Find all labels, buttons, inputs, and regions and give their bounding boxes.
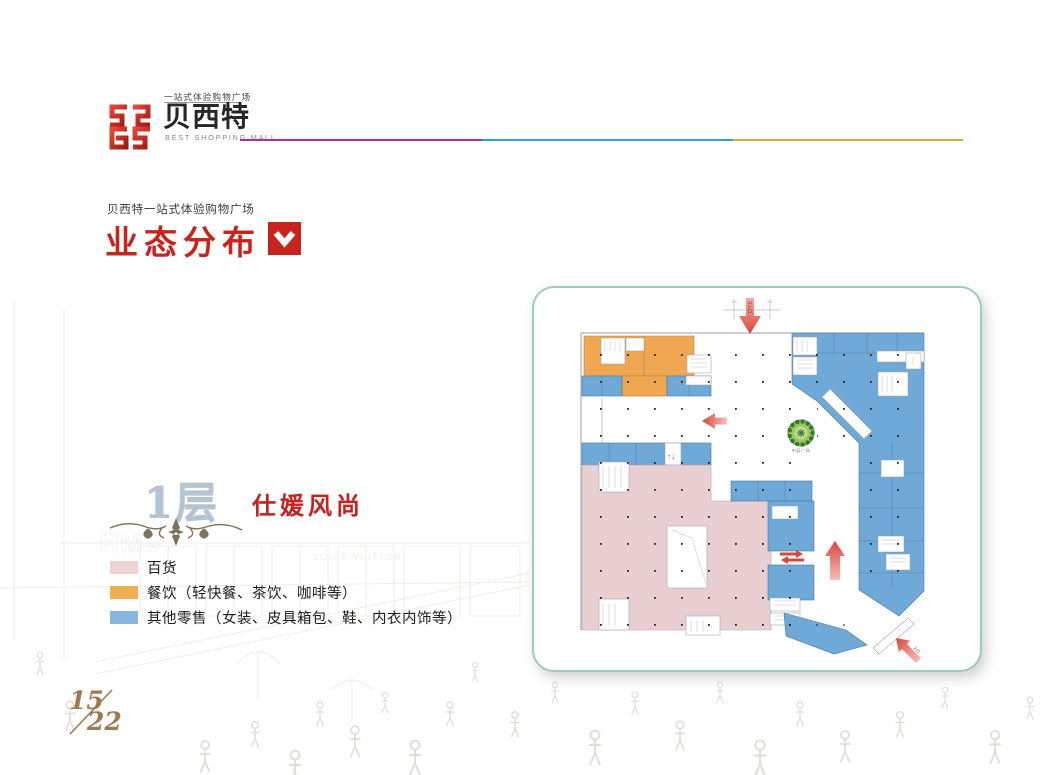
floorplan-card: 主入口 xyxy=(532,286,982,672)
header-rule-orange xyxy=(733,139,963,141)
tree-icon xyxy=(788,419,815,446)
legend-label: 餐饮（轻快餐、茶饮、咖啡等） xyxy=(147,582,357,603)
legend-swatch-department xyxy=(110,561,138,574)
top-entrance: 主入口 xyxy=(724,298,780,334)
legend-item-dining: 餐饮（轻快餐、茶饮、咖啡等） xyxy=(110,583,462,601)
floor-theme-title: 仕媛风尚 xyxy=(252,486,364,521)
legend: 百货 餐饮（轻快餐、茶饮、咖啡等） 其他零售（女装、皮具箱包、鞋、内衣内饰等） xyxy=(110,558,462,633)
header-rule-blue xyxy=(482,139,733,141)
top-entrance-label: 主入口 xyxy=(748,301,754,313)
plaza-label: 中庭广场 xyxy=(792,447,811,454)
brand-seal-icon xyxy=(106,103,154,151)
legend-swatch-dining xyxy=(110,586,138,599)
page-total: 22 xyxy=(87,707,122,736)
legend-swatch-other-retail xyxy=(110,611,138,624)
logo-name: 贝西特 xyxy=(163,101,250,133)
ornament-flourish-icon xyxy=(108,516,244,548)
legend-label: 百货 xyxy=(147,557,177,578)
legend-item-other-retail: 其他零售（女装、皮具箱包、鞋、内衣内饰等） xyxy=(110,608,462,626)
slide: HMV LOUIS VUITTON xyxy=(0,0,1059,775)
flow-arrow-up-icon xyxy=(825,541,845,580)
floorplan-drawing: 主入口 xyxy=(534,288,980,670)
page-number: 15 22 xyxy=(64,686,126,742)
chevron-down-icon xyxy=(268,222,301,255)
legend-label: 其他零售（女装、皮具箱包、鞋、内衣内饰等） xyxy=(147,607,462,628)
legend-item-department: 百货 xyxy=(110,558,462,576)
title-eyebrow: 贝西特一站式体验购物广场 xyxy=(107,201,255,217)
header-rule-magenta xyxy=(240,139,482,141)
page-title: 业态分布 xyxy=(105,216,261,264)
